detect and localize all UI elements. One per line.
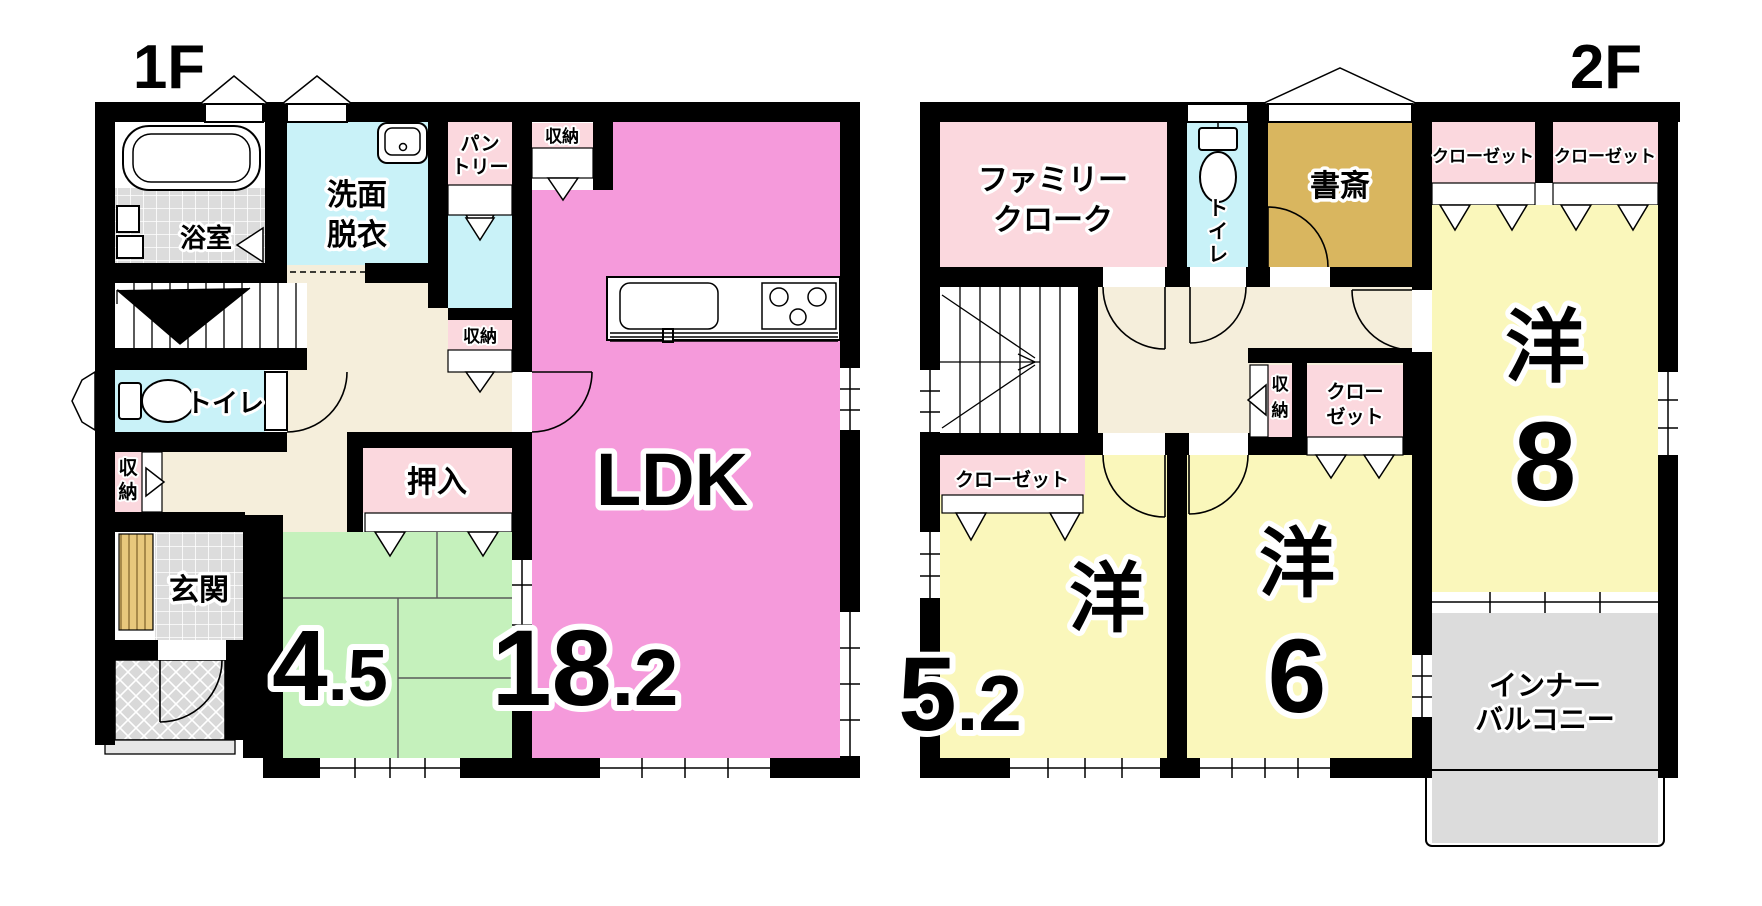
label-western52-kanji: 洋	[1069, 557, 1145, 642]
label-western8-kanji: 洋	[1505, 303, 1585, 392]
bay-window-bath	[200, 76, 268, 122]
label-storage-mid: 収納	[463, 326, 497, 346]
label-ldk: LDK	[596, 438, 748, 521]
entrance-bench	[119, 534, 153, 630]
porch	[115, 660, 225, 740]
label-western6-kanji: 洋	[1259, 522, 1335, 607]
floor-2f: 2F	[898, 33, 1680, 846]
floor-plan-drawing: 1F	[0, 0, 1762, 906]
label-western6-size: 6	[1268, 618, 1326, 735]
label-toilet-2f: トイレ	[1208, 198, 1228, 266]
floor1-title: 1F	[133, 33, 205, 102]
floor-plan-page: 1F	[0, 0, 1762, 906]
label-oshiire: 押入	[407, 466, 467, 499]
label-toilet-1f: トイレ	[186, 388, 264, 418]
label-storage-top: 収納	[545, 126, 579, 146]
toilet-bowl-2f	[1200, 152, 1236, 202]
label-entrance: 玄関	[169, 573, 229, 607]
bay-window-washroom	[282, 76, 352, 122]
label-western8-size: 8	[1514, 399, 1576, 524]
floor2-title: 2F	[1570, 33, 1642, 102]
label-closet-b: クローゼット	[1554, 146, 1656, 166]
stairs-2f	[940, 287, 1078, 433]
bay-window-study	[1262, 68, 1418, 122]
stairs-1f	[115, 283, 307, 348]
floor-1f: 1F	[72, 33, 860, 778]
toilet-tank-2f	[1199, 128, 1237, 150]
label-closet-c: クローゼット	[955, 468, 1069, 491]
label-study: 書斎	[1310, 169, 1370, 203]
label-closet-a: クローゼット	[1432, 146, 1534, 166]
toilet-bay-window	[72, 372, 95, 430]
kitchen-counter	[607, 277, 840, 340]
label-bath: 浴室	[180, 223, 232, 253]
porch-step	[105, 740, 235, 754]
toilet-tank-1f	[119, 383, 141, 419]
